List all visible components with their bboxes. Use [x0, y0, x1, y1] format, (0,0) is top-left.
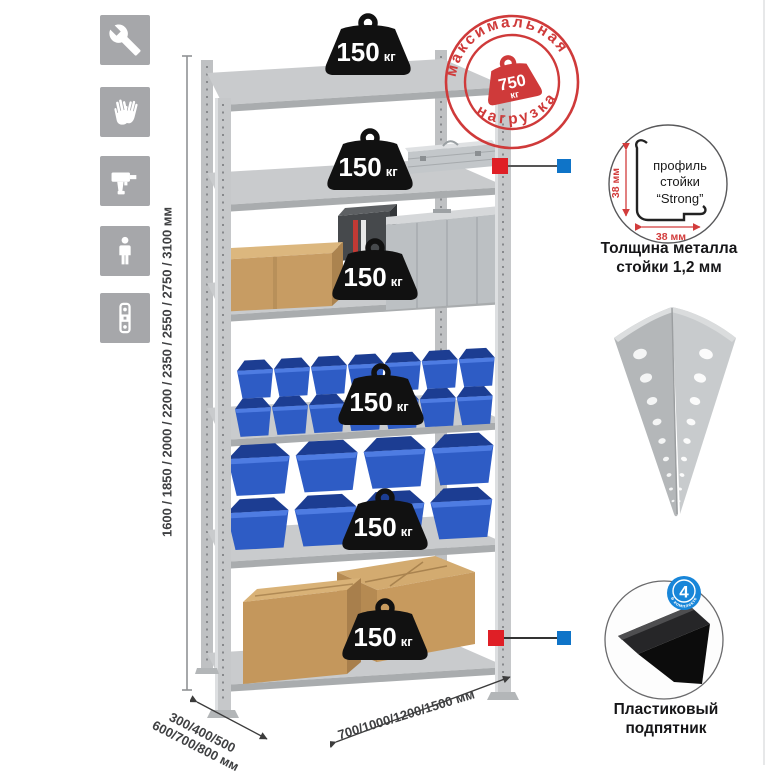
profile-label-line2: стойки — [660, 174, 700, 189]
blue-marker-square — [557, 159, 571, 173]
load-badge-shelf-1: 150кг — [325, 16, 410, 75]
profile-label-line1: профиль — [653, 158, 707, 173]
gloves-icon — [108, 95, 142, 129]
callout-foot-connector — [488, 630, 571, 646]
sidebar-icon-tile — [100, 156, 150, 206]
stamp-weight-glyph: 750 кг — [480, 52, 543, 106]
profile-caption: Толщина металла стойки 1,2 мм — [594, 239, 744, 278]
included-count-value: 4 — [679, 583, 689, 602]
level-icon — [108, 301, 142, 335]
callout-profile-connector — [492, 158, 571, 174]
height-dimension-label: 1600 / 1850 / 2000 / 2200 / 2350 / 2550 … — [160, 207, 175, 537]
max-load-stamp: максимальная нагрузка 750 кг — [438, 4, 588, 158]
foot-caption: Пластиковый подпятник — [598, 700, 734, 739]
shelving-product-infographic: { "sidebar": { "icons": [ {"name": "wren… — [0, 0, 765, 765]
profile-dim-vertical: 38 мм — [610, 168, 622, 198]
sidebar-icon-tile — [100, 293, 150, 343]
cardboard-box — [218, 242, 343, 312]
profile-label-line3: “Strong” — [657, 191, 704, 206]
sidebar-icon-tile — [100, 226, 150, 276]
red-marker-square — [488, 630, 504, 646]
perforated-angle-post-image — [600, 298, 750, 522]
wrench-icon — [108, 23, 142, 57]
load-badge-shelf-2: 150кг — [327, 131, 412, 190]
red-marker-square — [492, 158, 508, 174]
person-icon — [108, 234, 142, 268]
included-count-badge: 4 в комплекте — [667, 576, 701, 610]
sidebar-icon-tile — [100, 15, 150, 65]
plastic-foot-detail: 4 в комплекте — [598, 566, 734, 706]
drill-icon — [108, 164, 142, 198]
blue-marker-square — [557, 631, 571, 645]
sidebar-icon-tile — [100, 87, 150, 137]
post-profile-detail: 38 мм 38 мм профиль стойки “Strong” — [606, 122, 732, 248]
